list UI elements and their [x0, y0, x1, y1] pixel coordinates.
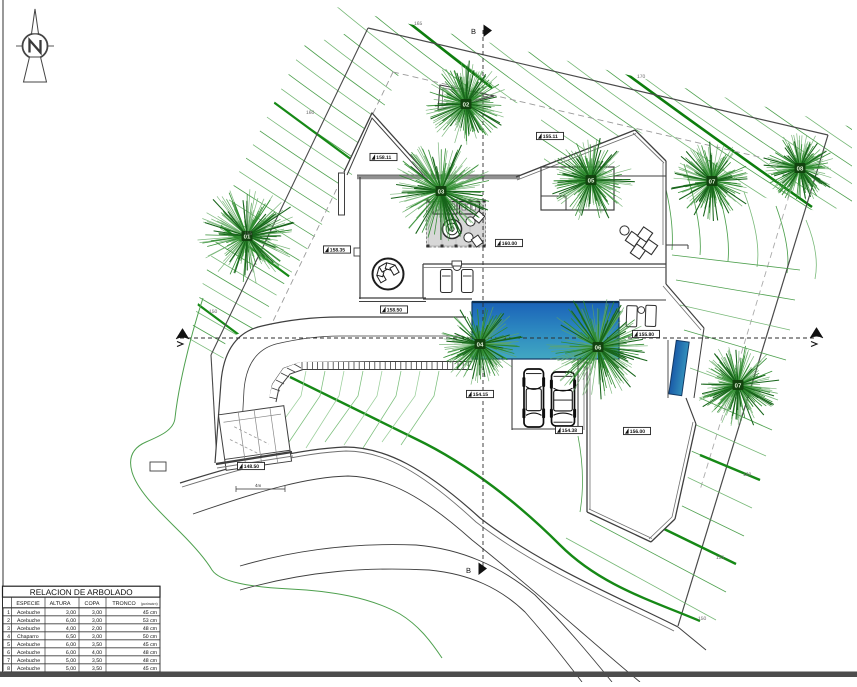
svg-text:Acebuche: Acebuche	[17, 666, 40, 672]
svg-text:ESPECIE: ESPECIE	[16, 601, 40, 607]
svg-text:Acebuche: Acebuche	[17, 610, 40, 616]
svg-text:150: 150	[698, 616, 707, 622]
svg-text:155: 155	[244, 231, 253, 237]
svg-text:45 cm: 45 cm	[143, 666, 157, 672]
svg-text:3,00: 3,00	[66, 610, 76, 616]
svg-text:4m: 4m	[255, 483, 262, 488]
svg-text:148.50: 148.50	[244, 464, 260, 470]
svg-text:1: 1	[7, 610, 10, 616]
svg-text:3: 3	[7, 626, 10, 632]
svg-text:2: 2	[7, 618, 10, 624]
svg-text:6,00: 6,00	[66, 650, 76, 656]
svg-text:165: 165	[414, 21, 423, 27]
svg-text:50 cm: 50 cm	[143, 634, 157, 640]
svg-text:45 cm: 45 cm	[143, 642, 157, 648]
svg-text:155: 155	[716, 555, 725, 561]
svg-text:08: 08	[797, 166, 804, 173]
svg-text:48 cm: 48 cm	[143, 626, 157, 632]
svg-text:53 cm: 53 cm	[143, 618, 157, 624]
svg-text:Acebuche: Acebuche	[17, 642, 40, 648]
svg-text:4,00: 4,00	[66, 626, 76, 632]
svg-text:02: 02	[463, 102, 470, 109]
svg-text:160: 160	[306, 110, 315, 116]
svg-text:5,00: 5,00	[66, 666, 76, 672]
svg-text:158.35: 158.35	[330, 248, 346, 254]
svg-text:3,00: 3,00	[92, 610, 102, 616]
svg-text:ALTURA: ALTURA	[50, 601, 71, 607]
svg-text:6,50: 6,50	[66, 634, 76, 640]
svg-text:4: 4	[7, 634, 10, 640]
svg-text:05: 05	[588, 178, 595, 185]
svg-text:5: 5	[7, 642, 10, 648]
svg-text:Acebuche: Acebuche	[17, 650, 40, 656]
svg-text:Acebuche: Acebuche	[17, 618, 40, 624]
svg-text:(perimetro): (perimetro)	[141, 602, 158, 606]
svg-text:3,50: 3,50	[92, 666, 102, 672]
svg-text:158.11: 158.11	[376, 155, 391, 161]
svg-text:3,50: 3,50	[92, 642, 102, 648]
svg-text:155.11: 155.11	[543, 134, 558, 140]
svg-text:04: 04	[477, 342, 484, 349]
svg-text:3,00: 3,00	[92, 634, 102, 640]
svg-text:8: 8	[7, 666, 10, 672]
svg-text:158.50: 158.50	[387, 308, 403, 314]
svg-text:07: 07	[735, 383, 742, 390]
svg-text:160: 160	[743, 472, 752, 478]
svg-text:Acebuche: Acebuche	[17, 626, 40, 632]
svg-text:03: 03	[438, 189, 445, 196]
svg-text:170: 170	[637, 74, 646, 80]
svg-text:156.00: 156.00	[630, 429, 646, 435]
svg-text:45 cm: 45 cm	[143, 610, 157, 616]
svg-text:3,00: 3,00	[92, 618, 102, 624]
svg-text:Chaparro: Chaparro	[17, 634, 39, 640]
svg-text:4,00: 4,00	[92, 650, 102, 656]
svg-text:6,00: 6,00	[66, 642, 76, 648]
svg-text:7: 7	[7, 658, 10, 664]
svg-text:48 cm: 48 cm	[143, 650, 157, 656]
svg-text:5,00: 5,00	[66, 658, 76, 664]
svg-text:B: B	[466, 566, 471, 575]
svg-text:48 cm: 48 cm	[143, 658, 157, 664]
svg-text:RELACION DE ARBOLADO: RELACION DE ARBOLADO	[30, 588, 133, 597]
svg-text:6,00: 6,00	[66, 618, 76, 624]
svg-text:Acebuche: Acebuche	[17, 658, 40, 664]
svg-text:07: 07	[709, 179, 716, 186]
svg-text:154.15: 154.15	[473, 392, 489, 398]
svg-text:155.80: 155.80	[639, 332, 655, 338]
svg-text:154.38: 154.38	[562, 428, 578, 434]
svg-text:160.00: 160.00	[502, 241, 518, 247]
svg-text:TRONCO: TRONCO	[112, 601, 135, 607]
svg-text:B: B	[471, 27, 476, 36]
svg-text:2,00: 2,00	[92, 626, 102, 632]
svg-text:06: 06	[595, 345, 602, 352]
svg-text:3,50: 3,50	[92, 658, 102, 664]
svg-text:6: 6	[7, 650, 10, 656]
svg-text:150: 150	[209, 309, 218, 315]
svg-text:COPA: COPA	[85, 601, 100, 607]
